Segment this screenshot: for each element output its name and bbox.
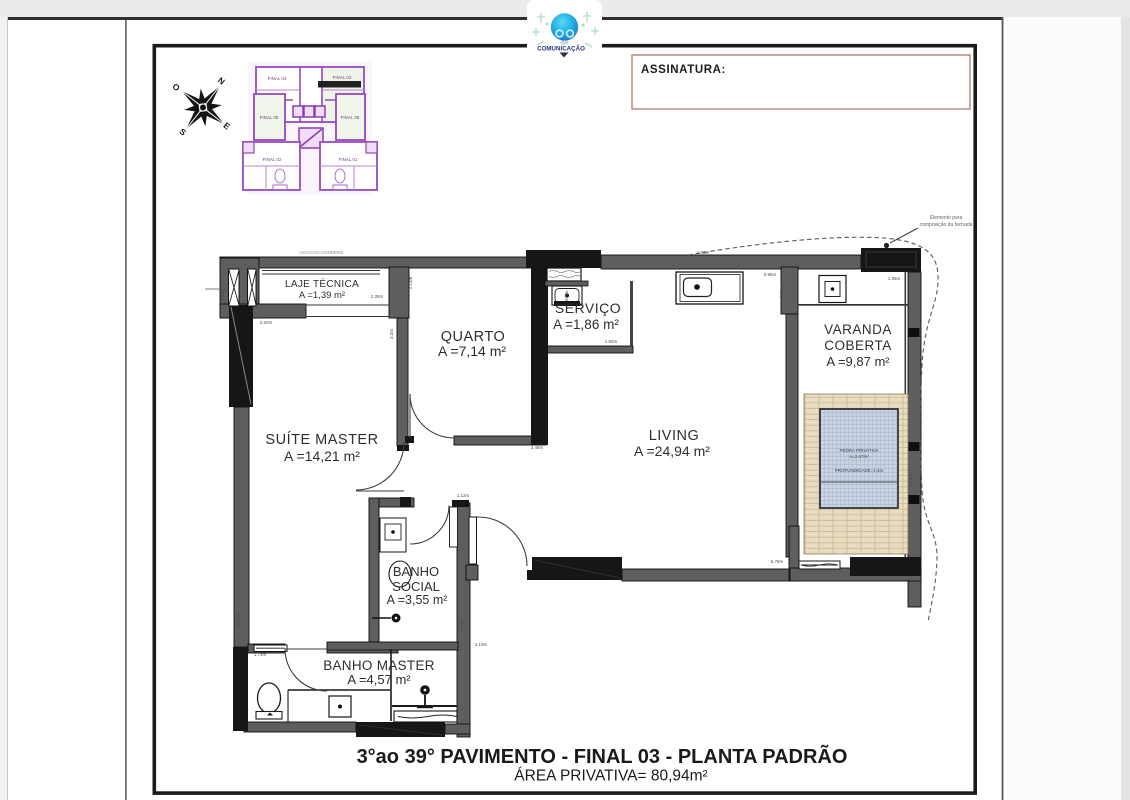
svg-text:2.35m: 2.35m bbox=[371, 294, 384, 299]
svg-text:ÁREA PRIVATIVA= 80,94m²: ÁREA PRIVATIVA= 80,94m² bbox=[514, 768, 707, 785]
svg-text:FINAL 02: FINAL 02 bbox=[263, 157, 282, 162]
svg-text:Elemento para: Elemento para bbox=[930, 215, 963, 221]
svg-text:0.95m: 0.95m bbox=[764, 272, 777, 277]
svg-text:FINAL 01: FINAL 01 bbox=[339, 157, 358, 162]
svg-text:2.60m: 2.60m bbox=[260, 320, 273, 325]
svg-text:0.88m: 0.88m bbox=[220, 288, 225, 301]
svg-text:SUÍTE MASTER: SUÍTE MASTER bbox=[265, 431, 378, 448]
svg-text:SOCIAL: SOCIAL bbox=[392, 579, 440, 594]
svg-text:BANHO MASTER: BANHO MASTER bbox=[323, 658, 435, 673]
svg-text:COBERTA: COBERTA bbox=[824, 338, 892, 353]
svg-text:LIGACAO CONDENS.: LIGACAO CONDENS. bbox=[299, 250, 344, 255]
svg-text:FINAL 04: FINAL 04 bbox=[268, 76, 287, 81]
svg-text:VARANDA: VARANDA bbox=[824, 322, 892, 337]
svg-text:1.93m: 1.93m bbox=[459, 618, 464, 631]
svg-text:PROFUNDIDADE: 1,4m: PROFUNDIDADE: 1,4m bbox=[835, 468, 884, 473]
svg-text:A =3,55 m²: A =3,55 m² bbox=[387, 593, 448, 607]
svg-text:1.95m: 1.95m bbox=[888, 276, 901, 281]
svg-text:COMUNICAÇÃO: COMUNICAÇÃO bbox=[537, 46, 585, 53]
svg-text:LIVING: LIVING bbox=[649, 428, 700, 444]
svg-text:A =24,94 m²: A =24,94 m² bbox=[634, 443, 710, 459]
svg-text:ASSINATURA:: ASSINATURA: bbox=[641, 64, 726, 76]
svg-text:2.14m: 2.14m bbox=[408, 276, 413, 289]
svg-text:5.78m: 5.78m bbox=[771, 559, 784, 564]
svg-text:2.19m: 2.19m bbox=[475, 642, 488, 647]
svg-text:FINAL 03: FINAL 03 bbox=[333, 75, 352, 80]
svg-text:BANHO: BANHO bbox=[393, 564, 439, 579]
svg-text:A =4,57 m²: A =4,57 m² bbox=[347, 672, 411, 687]
svg-text:A =1,39 m²: A =1,39 m² bbox=[299, 290, 345, 301]
svg-text:1.12m: 1.12m bbox=[457, 493, 470, 498]
svg-text:3.2m: 3.2m bbox=[389, 329, 394, 339]
svg-text:A =14,21 m²: A =14,21 m² bbox=[284, 448, 360, 464]
svg-text:1.74m: 1.74m bbox=[254, 652, 267, 657]
svg-text:1.96m: 1.96m bbox=[697, 250, 710, 255]
svg-text:A =9,87 m²: A =9,87 m² bbox=[826, 354, 890, 369]
svg-text:0.9m: 0.9m bbox=[564, 291, 569, 301]
svg-text:A =7,14 m²: A =7,14 m² bbox=[438, 343, 506, 359]
svg-text:3.66m: 3.66m bbox=[908, 473, 913, 486]
svg-text:SERVIÇO: SERVIÇO bbox=[555, 300, 621, 316]
svg-text:composição da fachada: composição da fachada bbox=[920, 222, 973, 228]
svg-text:FINAL 06: FINAL 06 bbox=[341, 115, 360, 120]
svg-text:A=2,67m²: A=2,67m² bbox=[849, 454, 869, 459]
svg-text:FINAL 05: FINAL 05 bbox=[260, 115, 279, 120]
svg-text:1.50m: 1.50m bbox=[605, 339, 618, 344]
svg-text:0.54m: 0.54m bbox=[779, 285, 784, 298]
svg-text:A =1,86 m²: A =1,86 m² bbox=[553, 317, 619, 332]
svg-text:4.64m: 4.64m bbox=[236, 613, 241, 626]
svg-text:3°ao 39° PAVIMENTO - FINAL 03: 3°ao 39° PAVIMENTO - FINAL 03 - PLANTA P… bbox=[357, 745, 848, 768]
svg-text:LAJE TÉCNICA: LAJE TÉCNICA bbox=[285, 277, 359, 290]
svg-text:PEDRA PRIVATIVA: PEDRA PRIVATIVA bbox=[839, 448, 878, 453]
svg-text:2.45m: 2.45m bbox=[531, 445, 544, 450]
